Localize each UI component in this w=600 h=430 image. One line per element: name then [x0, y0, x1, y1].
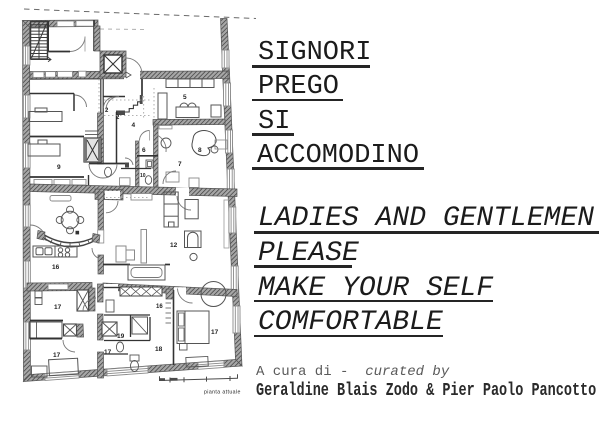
- svg-text:2: 2: [105, 108, 109, 114]
- svg-text:17: 17: [211, 329, 219, 336]
- svg-text:10: 10: [140, 173, 146, 179]
- svg-text:19: 19: [117, 333, 125, 340]
- svg-text:12: 12: [170, 242, 178, 249]
- svg-text:9: 9: [57, 164, 61, 171]
- svg-text:16: 16: [52, 264, 60, 271]
- svg-text:17: 17: [54, 304, 62, 311]
- svg-text:7: 7: [178, 161, 182, 168]
- svg-text:17: 17: [53, 352, 61, 359]
- svg-text:8: 8: [198, 147, 202, 154]
- svg-text:4: 4: [132, 122, 136, 129]
- svg-text:16: 16: [156, 304, 163, 310]
- svg-text:pianta attuale: pianta attuale: [204, 390, 241, 396]
- svg-text:6: 6: [142, 147, 146, 154]
- svg-text:5: 5: [183, 94, 187, 101]
- svg-text:17: 17: [104, 349, 112, 356]
- svg-text:18: 18: [155, 346, 163, 353]
